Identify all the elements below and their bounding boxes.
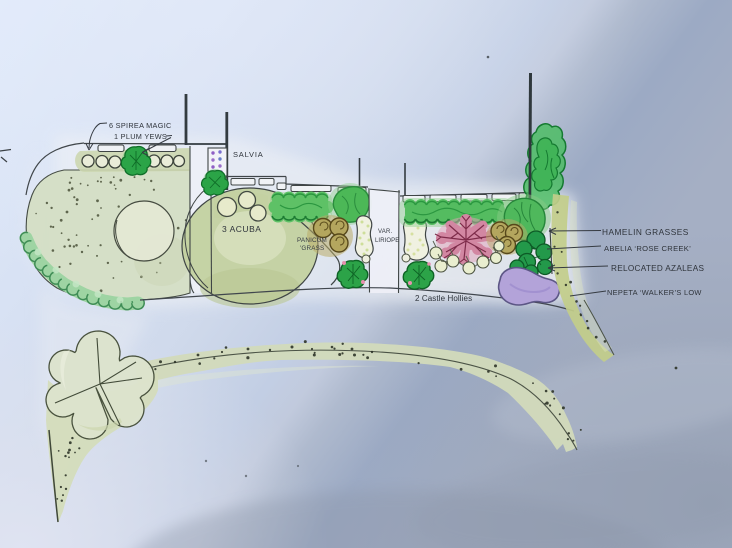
svg-text:RELOCATED AZALEAS: RELOCATED AZALEAS: [611, 264, 704, 273]
svg-text:SALVIA: SALVIA: [233, 150, 264, 159]
svg-text:'GRASS: 'GRASS: [300, 245, 324, 252]
svg-text:1 PLUM YEWS: 1 PLUM YEWS: [114, 132, 167, 141]
svg-text:ABELIA ‘ROSE CREEK’: ABELIA ‘ROSE CREEK’: [604, 244, 691, 253]
svg-text:2 Castle Hollies: 2 Castle Hollies: [415, 294, 472, 303]
svg-text:3 ACUBA: 3 ACUBA: [222, 224, 261, 234]
svg-text:VAR.: VAR.: [378, 229, 392, 235]
svg-text:PANICUM: PANICUM: [297, 237, 327, 244]
svg-text:NEPETA ‘WALKER’S LOW: NEPETA ‘WALKER’S LOW: [607, 288, 702, 297]
svg-text:6 SPIREA MAGIC: 6 SPIREA MAGIC: [109, 121, 172, 130]
svg-text:LIRIOPE: LIRIOPE: [375, 238, 399, 244]
svg-text:HAMELIN GRASSES: HAMELIN GRASSES: [602, 227, 689, 237]
